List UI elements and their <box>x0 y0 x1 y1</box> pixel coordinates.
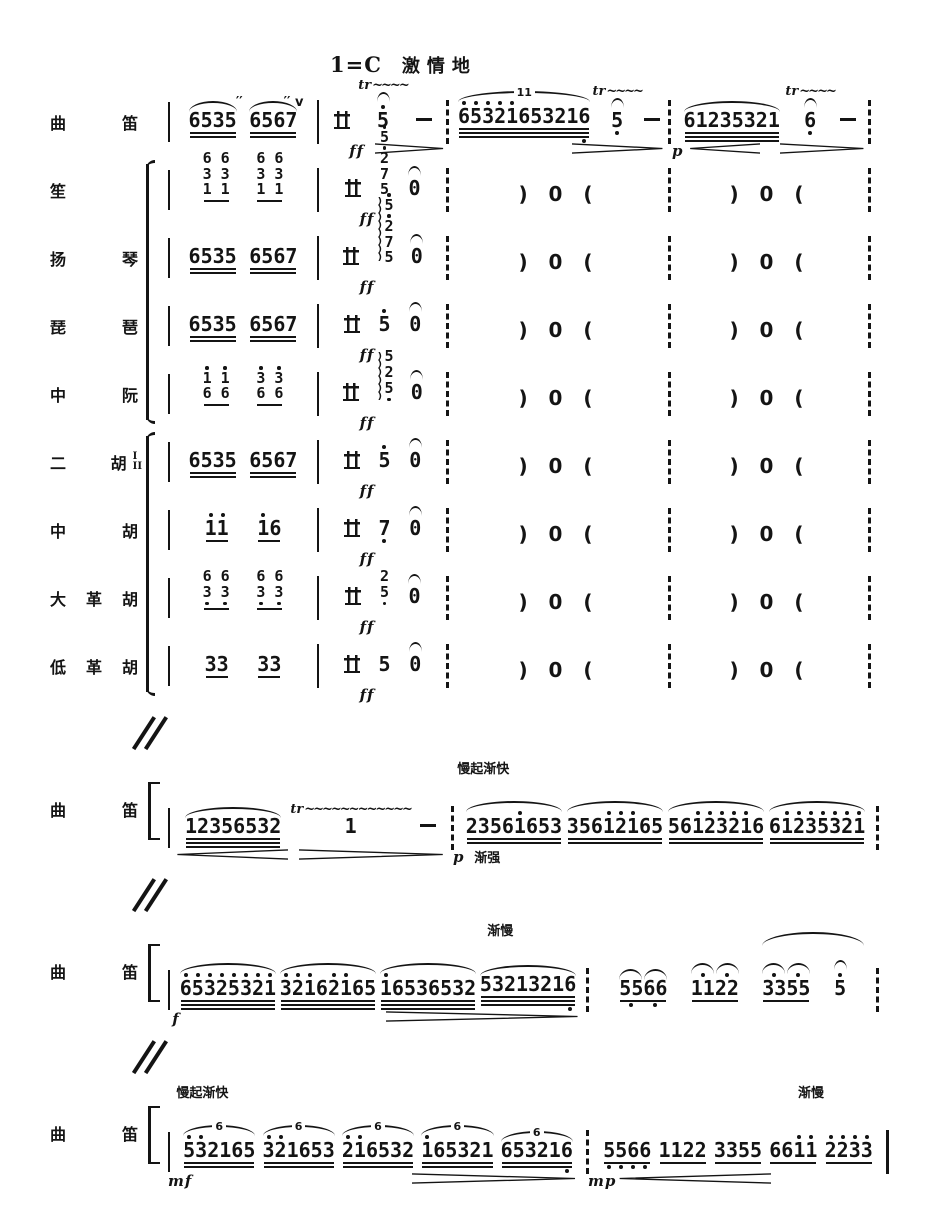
fermata-icon <box>410 234 423 244</box>
slur-arc <box>619 969 642 980</box>
beam-lines <box>189 470 237 478</box>
measures: 6535656750ff) 0 () 0 ( <box>168 428 870 496</box>
bracket-column <box>142 918 168 1024</box>
dynamic-marking: f <box>172 1010 179 1028</box>
note-group: 65325321 <box>180 954 276 1012</box>
beam-lines <box>256 606 283 610</box>
decrescendo-hairpin <box>572 143 665 154</box>
measures: 65325321321621651653653253213216渐慢f55661… <box>168 918 878 1024</box>
beam-lines <box>183 1160 255 1168</box>
nian-meter-symbol <box>344 315 360 333</box>
beam-lines <box>249 470 297 478</box>
measure: ) 0 ( <box>448 632 670 700</box>
score-row: 中阮161636365250ff) 0 () 0 ( <box>50 360 888 428</box>
note-digits: 216532 <box>342 1140 414 1160</box>
chord-digit: 1 <box>256 182 265 198</box>
note-digits: 1122 <box>659 1140 707 1160</box>
instrument-label-char: 中 <box>50 382 66 406</box>
note-digits: 321653 <box>263 1140 335 1160</box>
octave-dot <box>631 1165 635 1169</box>
note-digits: 35612165 <box>567 816 663 836</box>
beam-lines <box>256 402 283 406</box>
rest-symbol: ) 0 ( <box>518 660 599 688</box>
tacet-rest-symbol: ) 0 ( <box>518 456 599 484</box>
chord-stack: 63 <box>221 569 230 606</box>
measure: 23561653356121655612321661235321慢起渐快p渐强 <box>453 756 878 862</box>
chord-digit: 3 <box>203 585 212 601</box>
instrument-label-char: 胡 <box>122 586 138 610</box>
trill-mark: tr~~~~ <box>358 78 407 92</box>
instrument-label: 大革胡 <box>50 564 142 632</box>
note-digits: 23561653 <box>466 816 562 836</box>
chord-digit: 5 <box>384 381 393 397</box>
note-group: 11 <box>205 494 229 552</box>
note-group: 6535 <box>189 426 237 484</box>
note-digits: 165321 <box>421 1140 493 1160</box>
measure: ) 0 ( <box>448 292 670 360</box>
beam-lines <box>501 1160 573 1168</box>
note: 5 <box>378 426 390 484</box>
dynamic-marking: ff <box>360 210 375 228</box>
note-digits: 6611 <box>769 1140 817 1160</box>
score-row: 曲笛65321656321653621653261653216653216慢起渐… <box>50 1080 888 1186</box>
slur-row <box>466 801 562 810</box>
articulation-marks: ′′ <box>236 96 243 109</box>
chord: 25 <box>380 545 389 620</box>
octave-dot <box>629 1003 633 1007</box>
key-signature: 1=C <box>330 52 382 77</box>
note-digits: 5566 <box>619 978 667 998</box>
score-page: 1=C 激情地 曲笛′′6535′′ v6567tr~~~~5ff1165321… <box>0 0 933 1222</box>
slur-row <box>684 101 780 110</box>
note-digits: 0 <box>409 314 421 334</box>
instrument-label-char: 笛 <box>122 959 138 983</box>
note: tr~~~~5 <box>592 84 641 144</box>
beam-lines <box>421 1160 493 1168</box>
chord-digit: 1 <box>221 182 230 198</box>
octave-dot <box>277 602 281 606</box>
system-1: 曲笛′′6535′′ v6567tr~~~~5ff1165321653216tr… <box>50 88 888 700</box>
fermata-icon <box>804 98 817 108</box>
beam-lines <box>205 674 229 678</box>
phrase-slur-arc <box>762 932 864 946</box>
score-row: 低革胡333350ff) 0 () 0 ( <box>50 632 888 700</box>
note-group: 1165321653216 <box>458 82 590 144</box>
note-group: 16 <box>257 494 281 552</box>
system-bracket <box>148 1106 160 1164</box>
beam-lines <box>257 674 281 678</box>
instrument-label-char: 笙 <box>50 178 66 202</box>
note-group: 6611 <box>769 1116 817 1174</box>
note-digits: 11 <box>205 518 229 538</box>
note-digits: 32162165 <box>280 978 376 998</box>
rest-symbol: ) 0 ( <box>729 184 810 212</box>
beam-lines <box>342 1160 414 1168</box>
tacet-rest-symbol: ) 0 ( <box>518 524 599 552</box>
dynamic-marking: mf <box>168 1172 192 1190</box>
note: 0 <box>409 290 422 348</box>
beam-lines <box>668 836 764 844</box>
arpeggio-wavy-line <box>375 352 382 400</box>
nian-meter-symbol <box>343 383 359 401</box>
system-4: 曲笛65321656321653621653261653216653216慢起渐… <box>50 1080 888 1186</box>
chord-stack: 525 <box>384 349 393 402</box>
fermata-icon <box>408 574 421 584</box>
crescendo-hairpin <box>615 1173 771 1184</box>
chord-digit: 5 <box>380 585 389 601</box>
decrescendo-hairpin <box>412 1173 580 1184</box>
octave-dots <box>458 138 590 144</box>
free-meter-symbol <box>334 87 350 144</box>
annotation-text: 渐慢 <box>487 920 513 939</box>
chord: 525 <box>375 325 393 416</box>
trill-mark: tr~~~~~~~~~~~~ <box>290 802 411 816</box>
note-digits: 5 <box>834 978 846 998</box>
system-bracket <box>148 944 160 1002</box>
fermata-icon <box>409 642 422 652</box>
note-digits: 16536532 <box>380 978 476 998</box>
instrument-label: 笙 <box>50 156 142 224</box>
beam-lines <box>189 266 237 274</box>
instrument-label-char: 二 <box>50 450 66 474</box>
dash-note-line <box>416 118 432 122</box>
octave-dot <box>653 1003 657 1007</box>
dynamic-marking: ff <box>360 482 375 500</box>
beam-lines <box>180 998 276 1010</box>
note-group: 1122 <box>659 1116 707 1174</box>
caesura-mark <box>128 1038 188 1080</box>
tacet-rest-symbol: ) 0 ( <box>518 388 599 416</box>
slur-arc <box>684 101 780 112</box>
note: 7 <box>378 494 390 552</box>
note-group: 6567 <box>249 222 297 280</box>
note-group: 32162165 <box>280 954 376 1012</box>
fermata-icon <box>611 98 624 108</box>
annotation-text: 渐慢 <box>798 1082 824 1101</box>
system-2: 曲笛12356532tr~~~~~~~~~~~~1235616533561216… <box>50 756 888 862</box>
beam-lines <box>263 1160 335 1168</box>
decrescendo-hairpin <box>299 849 447 860</box>
measure: 631631631631 <box>168 156 318 224</box>
instrument-label-char: 笛 <box>122 797 138 821</box>
note-digits: 61235321 <box>684 110 780 130</box>
trill-mark: tr~~~~ <box>785 84 834 98</box>
rest-symbol: ) 0 ( <box>518 456 599 484</box>
score-row: 中胡111670ff) 0 () 0 ( <box>50 496 888 564</box>
note: 0 <box>410 358 423 416</box>
rest-symbol: ) 0 ( <box>729 320 810 348</box>
note-digits: 5 <box>611 110 623 130</box>
note-group: 6216532 <box>342 1116 414 1174</box>
crescendo-hairpin <box>688 143 760 154</box>
beam-lines <box>714 1160 762 1164</box>
rest-symbol: ) 0 ( <box>729 660 810 688</box>
instrument-label-char: 琵 <box>50 314 66 338</box>
instrument-label-char: 阮 <box>122 382 138 406</box>
note-digits: 5 <box>378 654 390 674</box>
slur-row <box>769 801 865 810</box>
note-digits: 0 <box>409 518 421 538</box>
tacet-rest-symbol: ) 0 ( <box>729 320 810 348</box>
bracket-column <box>142 756 168 862</box>
measure: ) 0 ( <box>670 496 870 564</box>
note: tr~~~~~~~~~~~~1 <box>290 792 411 850</box>
bracket-column <box>142 88 168 156</box>
note-digits: 65325321 <box>180 978 276 998</box>
note-digits: 1 <box>345 816 357 836</box>
nian-meter-symbol <box>344 451 360 469</box>
system-bracket <box>148 782 160 840</box>
octave-dots <box>619 1002 667 1008</box>
chord-stack: 25 <box>380 569 389 606</box>
chord-pair: 3636 <box>256 341 283 416</box>
tuplet-number: 11 <box>514 87 535 98</box>
tuplet-number: 6 <box>530 1127 544 1138</box>
measure: 52750ff <box>318 224 448 292</box>
group-bracket <box>146 436 159 692</box>
nian-meter-symbol <box>345 179 361 197</box>
free-meter-symbol <box>344 291 360 348</box>
instrument-label-char: 低 <box>50 654 66 678</box>
slur-row <box>567 801 663 810</box>
trill-mark: tr~~~~ <box>592 84 641 98</box>
arpeggio-wavy-line <box>375 197 382 261</box>
tacet-rest-symbol: ) 0 ( <box>729 388 810 416</box>
chord-stack: 36 <box>274 365 283 402</box>
note-digits: 16 <box>257 518 281 538</box>
chord-digit: 6 <box>274 386 283 402</box>
note-group: 6321653 <box>263 1116 335 1174</box>
instrument-label-char: 笛 <box>122 1121 138 1145</box>
slur-row <box>668 801 764 810</box>
rest-symbol: ) 0 ( <box>729 524 810 552</box>
beam-lines <box>203 402 230 406</box>
dynamic-marking: 渐强 <box>474 847 500 866</box>
measures: 12356532tr~~~~~~~~~~~~123561653356121655… <box>168 756 878 862</box>
chord-digit: 6 <box>221 386 230 402</box>
note-group: 6535 <box>189 290 237 348</box>
beam-lines <box>380 998 476 1010</box>
tacet-rest-symbol: ) 0 ( <box>518 592 599 620</box>
chord-digit: 6 <box>203 386 212 402</box>
annotation-text: 慢起渐快 <box>457 758 509 777</box>
dynamic-marking: ff <box>360 414 375 432</box>
chord: 5275 <box>375 168 393 280</box>
fermata-icon <box>410 370 423 380</box>
instrument-label: 曲笛 <box>50 918 142 1024</box>
instrument-label: 琵琶 <box>50 292 142 360</box>
note-digits: 532165 <box>183 1140 255 1160</box>
beam-lines <box>185 836 281 848</box>
fermata-icon <box>409 438 422 448</box>
octave-dot <box>223 602 227 606</box>
note-group: 53213216 <box>480 950 576 1012</box>
measure: 5250ff <box>318 360 448 428</box>
instrument-label-char: 琴 <box>122 246 138 270</box>
beam-lines <box>256 198 283 202</box>
note-group: 6535 <box>189 222 237 280</box>
instrument-label: 中胡 <box>50 496 142 564</box>
instrument-label-char: 曲 <box>50 110 66 134</box>
note-digits: 3355 <box>762 978 810 998</box>
instrument-label: 低革胡 <box>50 632 142 700</box>
octave-dot <box>615 131 619 135</box>
chord-stack: 36 <box>256 365 265 402</box>
score-row: 扬琴6535656752750ff) 0 () 0 ( <box>50 224 888 292</box>
fermata-icon <box>409 302 422 312</box>
measure: ) 0 ( <box>670 156 870 224</box>
slur-row <box>185 807 281 816</box>
slur-arc <box>466 801 562 812</box>
rest-symbol: ) 0 ( <box>729 592 810 620</box>
measure: 65356567 <box>168 224 318 292</box>
dash-note <box>840 94 856 145</box>
instrument-label-char: 胡 <box>111 450 127 474</box>
measures: 6535656752750ff) 0 () 0 ( <box>168 224 870 292</box>
note-digits: 6535 <box>189 314 237 334</box>
tacet-rest-symbol: ) 0 ( <box>729 252 810 280</box>
note-digits: 6 <box>804 110 816 130</box>
note-digits: 53213216 <box>480 974 576 994</box>
note-group: 3355 <box>714 1116 762 1174</box>
measure: ) 0 ( <box>670 632 870 700</box>
expression-marking: 激情地 <box>402 52 477 78</box>
note-group: 33 <box>205 630 229 688</box>
note-digits: 6567 <box>249 450 297 470</box>
slur-arc <box>716 963 739 974</box>
beam-lines <box>203 606 230 610</box>
note: 5 <box>834 954 847 1012</box>
note: 5 <box>378 630 390 688</box>
beam-lines <box>825 1160 873 1164</box>
chord-pair: 1616 <box>203 341 230 416</box>
measure: ) 0 ( <box>448 564 670 632</box>
note-group: 6532165 <box>183 1116 255 1174</box>
measure: 50ff <box>318 632 448 700</box>
free-meter-symbol <box>344 631 360 688</box>
annotation-text: 慢起渐快 <box>176 1082 228 1101</box>
caesura-mark <box>128 876 188 918</box>
chord-stack: 63 <box>203 569 212 606</box>
dynamic-marking: ff <box>360 550 375 568</box>
measure: 5566112233555 <box>588 918 878 1024</box>
slur-arc <box>787 963 810 974</box>
chord-pair: 6363 <box>203 545 230 620</box>
octave-dot <box>259 602 263 606</box>
beam-lines <box>466 836 562 844</box>
slur-row: ′′ v <box>249 101 297 110</box>
note-digits: 653216 <box>501 1140 573 1160</box>
chord-stack: 631 <box>203 151 212 198</box>
crescendo-hairpin <box>174 849 288 860</box>
score-row: 曲笛65325321321621651653653253213216渐慢f556… <box>50 918 888 1024</box>
instrument-label: 曲笛 <box>50 88 142 156</box>
octave-dot <box>643 1165 647 1169</box>
instrument-label: 曲笛 <box>50 756 142 862</box>
note-group: 6567 <box>249 290 297 348</box>
note: 0 <box>409 426 422 484</box>
octave-dot <box>808 131 812 135</box>
measure: 1165321653216tr~~~~5 <box>448 88 670 156</box>
note-digits: 0 <box>411 382 423 402</box>
note-digits: 56123216 <box>668 816 764 836</box>
note-group: 6165321 <box>421 1116 493 1174</box>
beam-lines <box>458 126 590 138</box>
note-group: 61235321 <box>769 792 865 850</box>
note-group: 5566 <box>619 954 667 1012</box>
note-group: 5566 <box>603 1116 651 1174</box>
note: tr~~~~6 <box>785 84 834 144</box>
note-digits: 33 <box>257 654 281 674</box>
beam-lines <box>480 994 576 1006</box>
instrument-label-char: 中 <box>50 518 66 542</box>
fermata-icon <box>408 166 421 176</box>
beam-lines <box>769 836 865 844</box>
measures: 65321656321653621653261653216653216慢起渐快m… <box>168 1080 888 1186</box>
dash-note <box>416 94 432 145</box>
tacet-rest-symbol: ) 0 ( <box>518 320 599 348</box>
chord-stack: 63 <box>256 569 265 606</box>
note-digits: 5566 <box>603 1140 651 1160</box>
measure: ′′6535′′ v6567 <box>168 88 318 156</box>
chord-digit: 5 <box>384 198 393 214</box>
dynamic-marking: p <box>672 142 684 160</box>
score-row: 笙63163163163152750ff) 0 () 0 ( <box>50 156 888 224</box>
note-digits: 3355 <box>714 1140 762 1160</box>
dynamic-marking: ff <box>360 618 375 636</box>
slur-row <box>691 963 739 972</box>
bracket-column <box>142 1080 168 1186</box>
note-group: 1122 <box>691 954 739 1012</box>
measure: 3333 <box>168 632 318 700</box>
tacet-rest-symbol: ) 0 ( <box>729 456 810 484</box>
note-digits: 0 <box>408 586 420 606</box>
chord-digit: 1 <box>203 182 212 198</box>
octave-dots <box>603 1164 651 1170</box>
nian-meter-symbol <box>344 519 360 537</box>
tacet-rest-symbol: ) 0 ( <box>729 660 810 688</box>
instrument-label: 中阮 <box>50 360 142 428</box>
chord-stack: 5275 <box>384 192 393 266</box>
note-group: 12356532 <box>185 792 281 850</box>
beam-lines <box>762 998 810 1002</box>
measure: 65356567 <box>168 292 318 360</box>
dash-note-line <box>644 118 660 122</box>
measure: ) 0 ( <box>670 564 870 632</box>
chord-stack: 631 <box>221 151 230 198</box>
note-group: 56123216 <box>668 792 764 850</box>
octave-dot <box>619 1165 623 1169</box>
note-digits: 6567 <box>249 314 297 334</box>
measure: 250ff <box>318 564 448 632</box>
fermata-icon <box>834 960 847 970</box>
tacet-rest-symbol: ) 0 ( <box>518 252 599 280</box>
instrument-label-char: 扬 <box>50 246 66 270</box>
dash-note <box>420 800 436 851</box>
slur-arc <box>691 963 714 974</box>
beam-lines <box>769 1160 817 1164</box>
chord-digit: 6 <box>256 386 265 402</box>
instrument-label: 二胡III <box>50 428 142 496</box>
instrument-label-char: 胡 <box>122 654 138 678</box>
note-digits: 65321653216 <box>458 106 590 126</box>
chord-pair: 631631 <box>203 127 230 212</box>
slur-row <box>762 963 810 972</box>
score-body: 曲笛′′6535′′ v6567tr~~~~5ff1165321653216tr… <box>50 88 888 1186</box>
score-row: 曲笛12356532tr~~~~~~~~~~~~1235616533561216… <box>50 756 888 862</box>
slur-arc <box>480 965 576 976</box>
slur-arc <box>769 801 865 812</box>
